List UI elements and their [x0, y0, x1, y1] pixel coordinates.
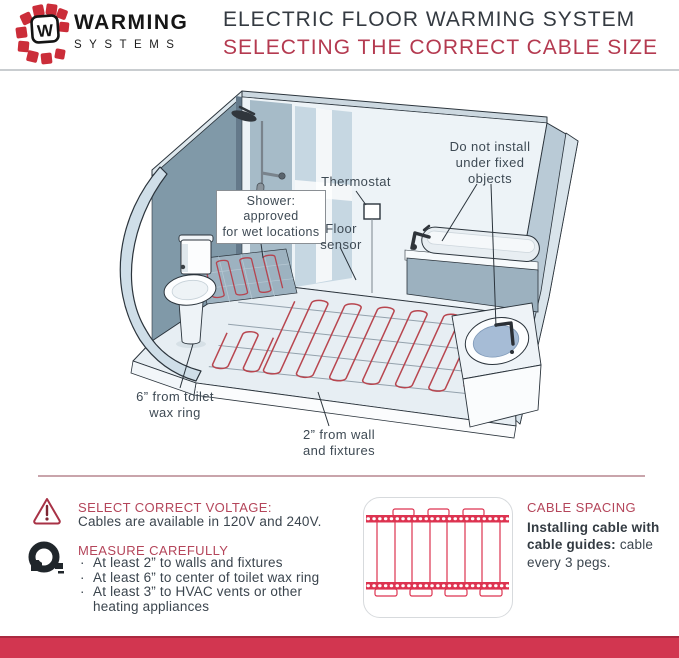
label-thermostat: Thermostat	[318, 174, 394, 190]
spacing-body: Installing cable with cable guides: cabl…	[527, 519, 669, 571]
toilet-flush-button	[181, 265, 185, 269]
spacing-title: CABLE SPACING	[527, 500, 669, 515]
measure-bullet: · At least 6” to center of toilet wax ri…	[80, 571, 332, 586]
label-shower: Shower: approved for wet locations	[216, 190, 326, 244]
measure-bullet-list: · At least 2” to walls and fixtures · At…	[80, 556, 332, 614]
voltage-body: Cables are available in 120V and 240V.	[78, 514, 322, 529]
label-fixed-objects: Do not install under fixed objects	[436, 139, 544, 187]
measure-bullet: · At least 2” to walls and fixtures	[80, 556, 332, 571]
cable-spacing-svg	[364, 498, 511, 616]
cable-spacing-illustration	[363, 497, 513, 618]
bullet-dot: ·	[80, 556, 93, 571]
section-divider	[38, 475, 645, 477]
thermostat-device	[364, 204, 380, 219]
label-toilet-clearance: 6” from toilet wax ring	[123, 389, 227, 421]
bullet-dot: ·	[80, 571, 93, 586]
shower-valve	[279, 173, 285, 179]
infographic-root: W WARMING SYSTEMS ELECTRIC FLOOR WARMING…	[0, 0, 679, 658]
tape-measure-icon	[27, 541, 65, 579]
measure-bullet: · At least 3” to HVAC vents or other hea…	[80, 585, 332, 614]
footer-red-band	[0, 636, 679, 658]
warning-icon	[32, 496, 62, 525]
bullet-dot: ·	[80, 585, 93, 614]
voltage-title: SELECT CORRECT VOLTAGE:	[78, 500, 272, 515]
cable-spacing-block: CABLE SPACING Installing cable with cabl…	[527, 500, 669, 571]
label-wall-clearance: 2” from wall and fixtures	[287, 427, 391, 459]
label-floor-sensor: Floor sensor	[312, 221, 370, 253]
